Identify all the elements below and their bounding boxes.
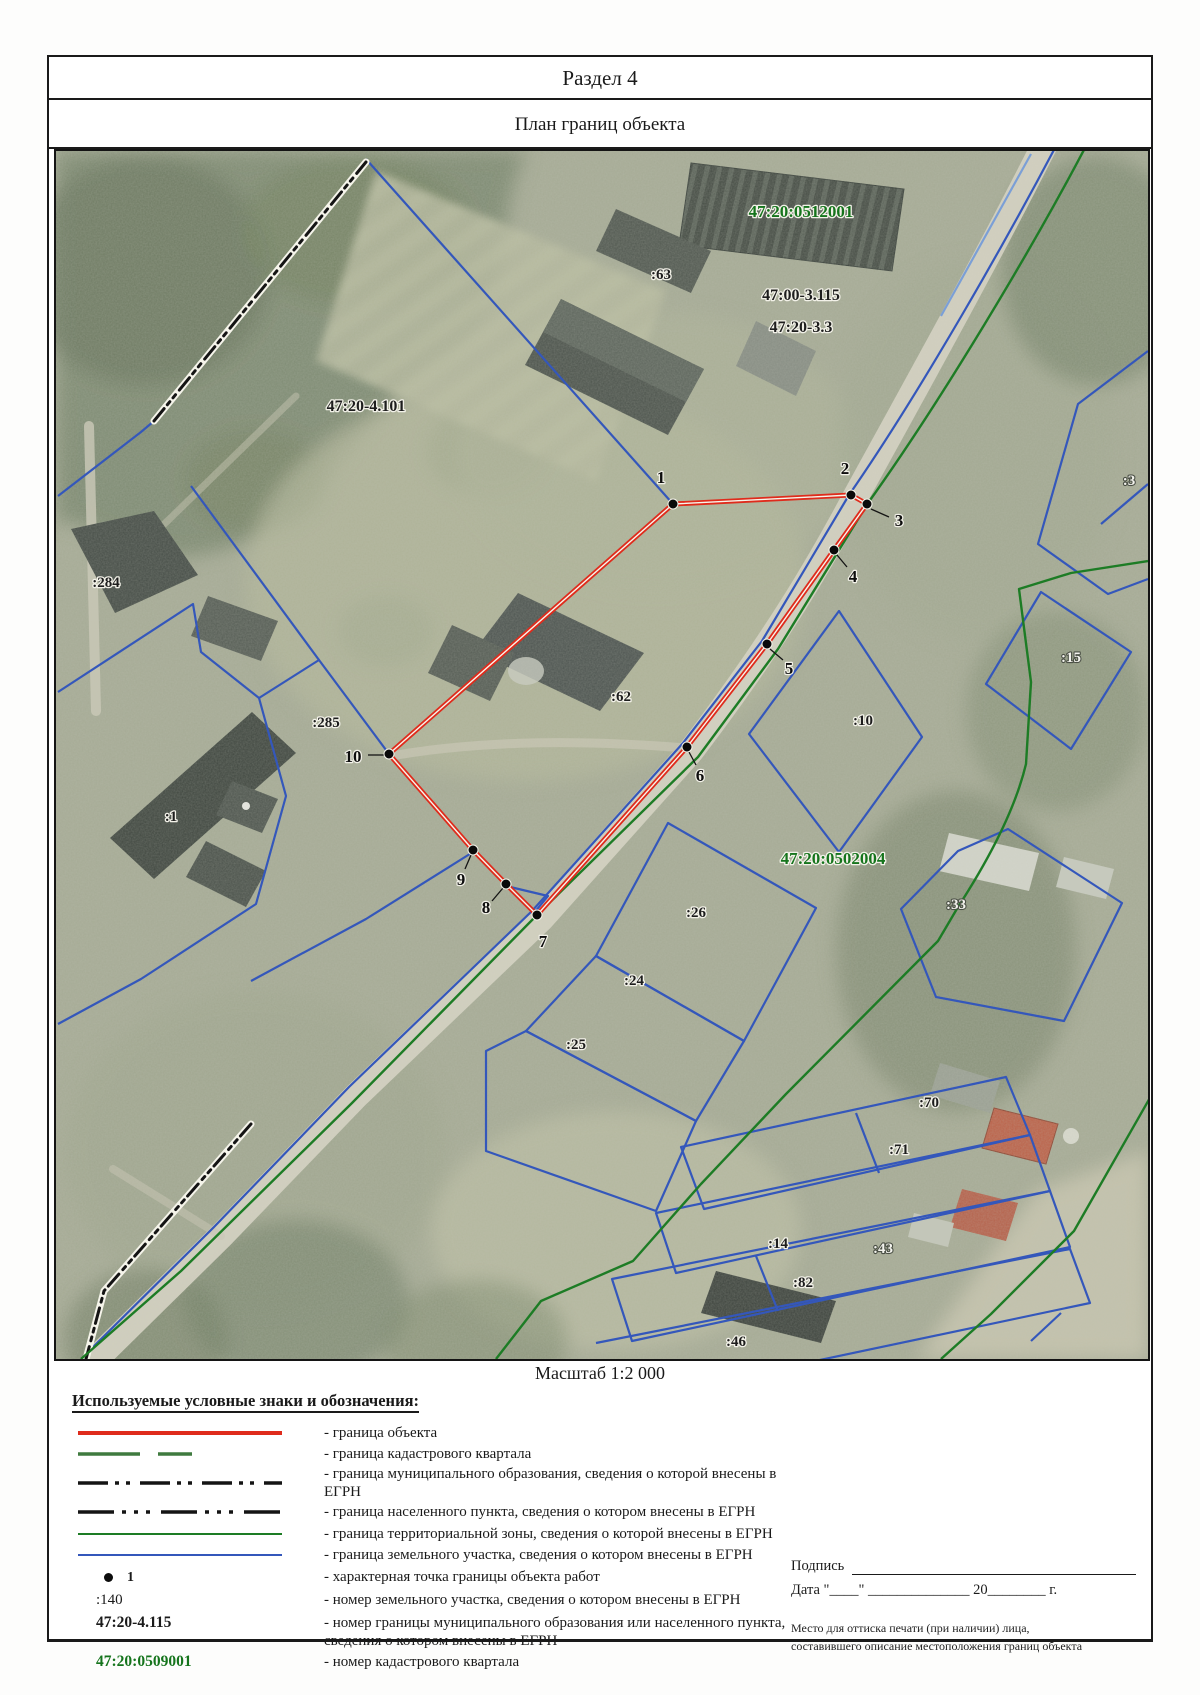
- legend-item: - граница объекта: [72, 1422, 817, 1444]
- legend-item-label: - номер кадастрового квартала: [324, 1653, 519, 1671]
- point-label-8: 8: [482, 898, 491, 917]
- signature-row: Подпись: [791, 1551, 1136, 1575]
- legend-item-label: - граница кадастрового квартала: [324, 1445, 531, 1463]
- label-parcel-62: :62: [611, 689, 631, 705]
- point-dot-icon: [104, 1573, 113, 1582]
- document-frame: Раздел 4 План границ объекта: [47, 55, 1153, 1642]
- date-row: Дата "____" ______________ 20________ г.: [791, 1582, 1136, 1606]
- point-sample-number: 1: [127, 1570, 134, 1586]
- legend-item: 47:20-4.115 - номер границы муниципально…: [72, 1612, 817, 1651]
- object-boundary-line-sample: [72, 1427, 324, 1439]
- section-title: Раздел 4: [49, 57, 1151, 100]
- legend-item: - граница муниципального образования, св…: [72, 1465, 817, 1502]
- label-parcel-15: :15: [1061, 650, 1081, 666]
- label-parcel-1: :1: [165, 809, 178, 825]
- legend-item: - граница населенного пункта, сведения о…: [72, 1502, 817, 1524]
- point-label-9: 9: [457, 870, 466, 889]
- boundary-number-sample: 47:20-4.115: [72, 1614, 171, 1632]
- label-parcel-82: :82: [793, 1275, 813, 1291]
- label-boundary-47-20-3-3: 47:20-3.3: [770, 319, 833, 336]
- label-parcel-14: :14: [768, 1236, 788, 1252]
- parcel-number-sample: :140: [72, 1592, 123, 1609]
- legend-item-label: - номер земельного участка, сведения о к…: [324, 1591, 740, 1609]
- label-parcel-46: :46: [726, 1334, 746, 1350]
- label-parcel-26: :26: [686, 905, 706, 921]
- characteristic-point-sample: 1: [72, 1570, 324, 1586]
- stamp-note-line2: составившего описание местоположения гра…: [791, 1637, 1136, 1655]
- label-quarter-0502004: 47:20:0502004: [781, 849, 886, 868]
- label-parcel-284: :284: [92, 575, 120, 591]
- legend-title: Используемые условные знаки и обозначени…: [72, 1391, 419, 1413]
- label-parcel-24: :24: [624, 973, 644, 989]
- point-label-6: 6: [696, 766, 705, 785]
- label-parcel-10: :10: [853, 713, 873, 729]
- point-label-7: 7: [539, 932, 548, 951]
- legend-item: - граница территориальной зоны, сведения…: [72, 1523, 817, 1545]
- label-parcel-63: :63: [651, 267, 671, 283]
- quarter-number-sample: 47:20:0509001: [72, 1653, 192, 1671]
- label-parcel-33: :33: [946, 897, 966, 913]
- map-canvas: 1 2 3 4 5 6 7 8 9 10 47:20:0512001 :63 4…: [56, 151, 1148, 1359]
- label-parcel-70: :70: [919, 1095, 939, 1111]
- legend-item-label: - граница объекта: [324, 1424, 437, 1442]
- image-noise-texture: [56, 151, 1148, 1359]
- label-parcel-43: :43: [873, 1241, 893, 1257]
- label-parcel-71: :71: [889, 1142, 909, 1158]
- label-parcel-25: :25: [566, 1037, 586, 1053]
- legend-item-label: - характерная точка границы объекта рабо…: [324, 1568, 600, 1586]
- label-boundary-47-00-3-115: 47:00-3.115: [762, 287, 840, 304]
- point-label-1: 1: [657, 468, 666, 487]
- scale-label: Масштаб 1:2 000: [49, 1363, 1151, 1384]
- parcel-boundary-line-sample: [72, 1549, 324, 1561]
- stamp-note-line1: Место для оттиска печати (при наличии) л…: [791, 1619, 1136, 1637]
- settlement-boundary-line-sample: [72, 1506, 324, 1518]
- legend-item-label: - номер границы муниципального образован…: [324, 1614, 794, 1651]
- point-label-3: 3: [895, 511, 904, 530]
- municipal-boundary-line-sample: [72, 1477, 324, 1489]
- legend-item: - граница земельного участка, сведения о…: [72, 1545, 817, 1567]
- legend-item: - граница кадастрового квартала: [72, 1444, 817, 1466]
- legend: Используемые условные знаки и обозначени…: [72, 1391, 817, 1674]
- legend-item-label: - граница земельного участка, сведения о…: [324, 1546, 753, 1564]
- legend-item-label: - граница территориальной зоны, сведения…: [324, 1525, 773, 1543]
- territorial-zone-line-sample: [72, 1528, 324, 1540]
- label-boundary-47-20-4-101: 47:20-4.101: [327, 398, 406, 415]
- signature-line: [852, 1556, 1136, 1575]
- label-parcel-285: :285: [312, 715, 340, 731]
- cadastral-plan-document: { "page": { "section_title": "Раздел 4",…: [0, 0, 1200, 1695]
- page-subtitle: План границ объекта: [49, 100, 1151, 149]
- cadastral-quarter-line-sample: [72, 1448, 324, 1460]
- point-label-10: 10: [345, 747, 362, 766]
- signature-block: Подпись Дата "____" ______________ 20___…: [791, 1551, 1136, 1655]
- label-parcel-3: :3: [1123, 473, 1136, 489]
- boundary-plan-map: 1 2 3 4 5 6 7 8 9 10 47:20:0512001 :63 4…: [54, 149, 1150, 1361]
- label-quarter-0512001: 47:20:0512001: [749, 202, 854, 221]
- legend-item: :140 - номер земельного участка, сведени…: [72, 1589, 817, 1612]
- stamp-note: Место для оттиска печати (при наличии) л…: [791, 1619, 1136, 1655]
- legend-item: 47:20:0509001 - номер кадастрового кварт…: [72, 1651, 817, 1674]
- legend-item-label: - граница населенного пункта, сведения о…: [324, 1503, 755, 1521]
- legend-item-label: - граница муниципального образования, св…: [324, 1465, 817, 1502]
- signature-label: Подпись: [791, 1558, 844, 1575]
- point-label-5: 5: [785, 659, 794, 678]
- point-label-4: 4: [849, 567, 858, 586]
- legend-item: 1 - характерная точка границы объекта ра…: [72, 1566, 817, 1589]
- point-label-2: 2: [841, 459, 850, 478]
